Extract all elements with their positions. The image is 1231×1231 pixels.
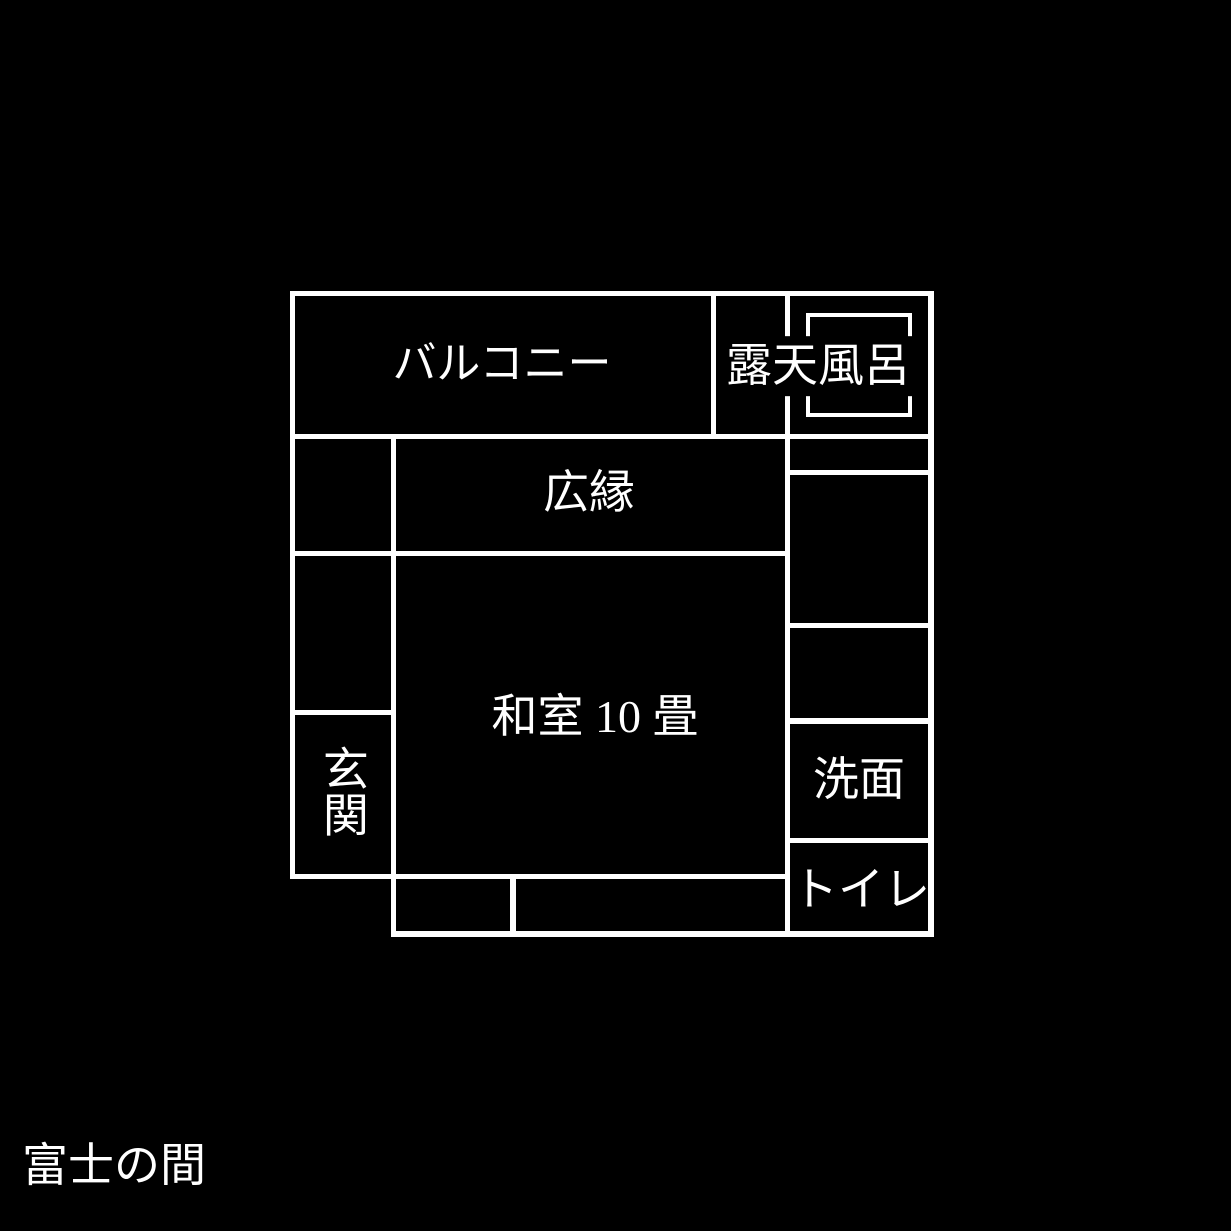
wall-bottom-strip-divider (510, 876, 516, 936)
floorplan-canvas: バルコニー 露天風呂 広縁 和室 10 畳 玄関 洗面 トイレ 富士の間 (0, 0, 1231, 1231)
wall-top-border (290, 291, 934, 296)
room-label-entrance: 玄関 (317, 745, 367, 837)
room-label-toilet: トイレ (792, 865, 930, 915)
wall-left-column-right-wall (391, 434, 396, 937)
wall-washitsu-bottom-wall (290, 874, 790, 879)
wall-bottom-border (391, 931, 934, 937)
plan-title: 富士の間 (22, 1141, 206, 1191)
room-label-open-air-bath: 露天風呂 (724, 336, 912, 396)
room-label-balcony: バルコニー (392, 340, 611, 388)
wall-washroom-bottom-wall (785, 838, 934, 843)
wall-row1-bottom-wall (290, 434, 934, 439)
wall-left-border (290, 291, 295, 879)
wall-veranda-bottom-wall (290, 551, 790, 556)
wall-balcony-right-wall (711, 291, 716, 439)
wall-right-column-divider (785, 623, 934, 628)
room-label-japanese-room: 和室 10 畳 (492, 692, 699, 742)
wall-washroom-top-wall (785, 718, 934, 724)
wall-bath-strip-bottom-wall (785, 470, 934, 475)
room-label-veranda: 広縁 (543, 468, 635, 518)
wall-entrance-top-wall (290, 710, 396, 715)
room-label-washroom: 洗面 (813, 755, 905, 805)
